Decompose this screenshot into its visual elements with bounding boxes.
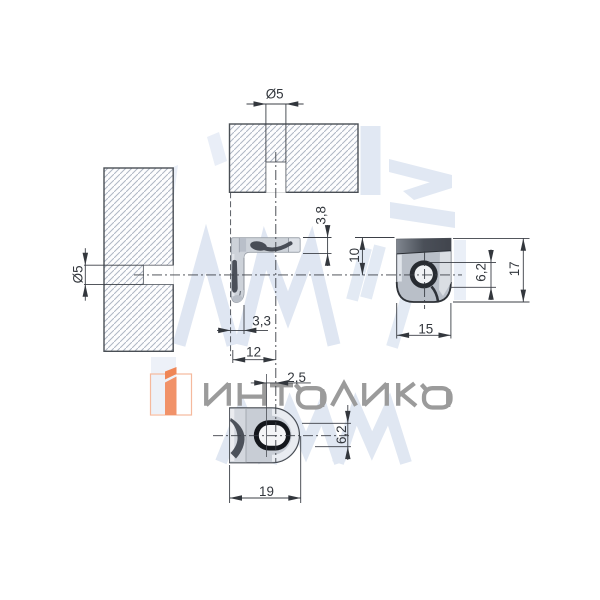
svg-text:3,3: 3,3 [252,314,271,329]
svg-text:6,2: 6,2 [474,263,489,282]
svg-text:17: 17 [507,261,522,276]
svg-text:15: 15 [418,321,433,336]
svg-text:3,8: 3,8 [313,206,328,225]
svg-text:19: 19 [259,484,274,499]
svg-text:Ø5: Ø5 [266,87,284,102]
svg-text:12: 12 [246,345,261,360]
svg-text:10: 10 [347,248,362,263]
svg-text:Ø5: Ø5 [71,265,86,283]
svg-text:6,2: 6,2 [334,425,349,444]
svg-text:2,5: 2,5 [287,370,306,385]
